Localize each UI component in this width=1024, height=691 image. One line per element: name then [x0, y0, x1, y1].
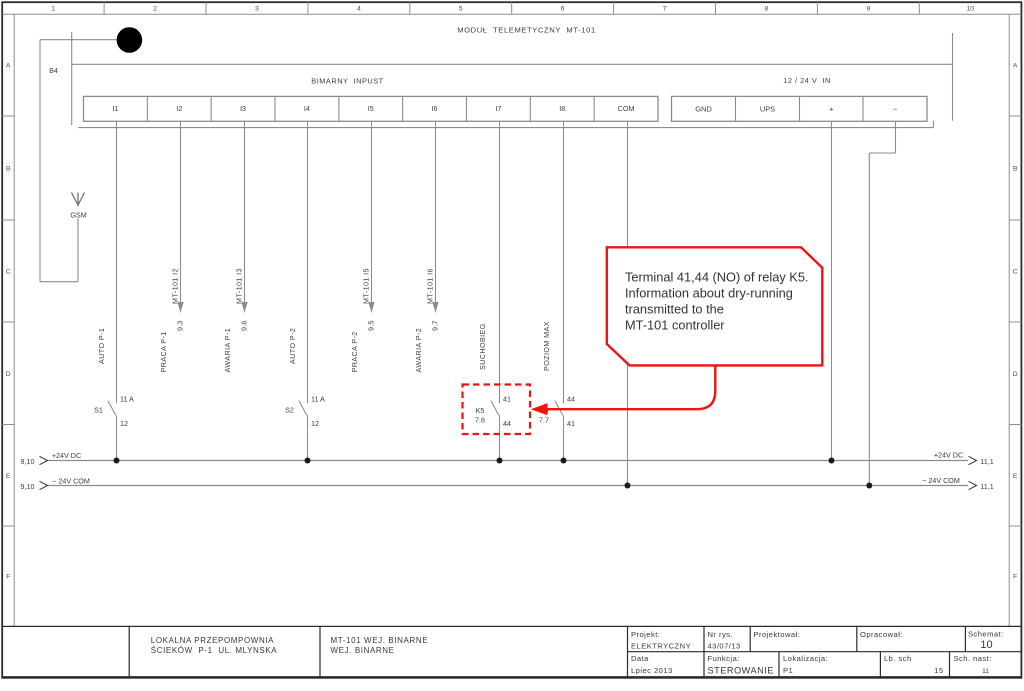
svg-text:B: B — [6, 166, 11, 173]
svg-text:9.5: 9.5 — [367, 320, 376, 331]
svg-text:SUCHOBIEG: SUCHOBIEG — [478, 323, 487, 370]
svg-text:D: D — [6, 371, 11, 378]
svg-text:S1: S1 — [94, 406, 103, 415]
svg-text:9.6: 9.6 — [240, 320, 249, 331]
svg-text:LOKALNA PRZEPOMPOWNIA: LOKALNA PRZEPOMPOWNIA — [151, 636, 274, 645]
svg-text:ELEKTRYCZNY: ELEKTRYCZNY — [631, 642, 691, 651]
svg-text:1: 1 — [51, 6, 55, 13]
svg-text:4: 4 — [357, 6, 361, 13]
svg-text:B: B — [1013, 166, 1018, 173]
svg-text:A: A — [6, 63, 11, 70]
svg-text:UPS: UPS — [760, 105, 775, 114]
svg-text:ŚCIEKÓW P-1 UL. MLYNSKA: ŚCIEKÓW P-1 UL. MLYNSKA — [151, 646, 277, 655]
svg-text:11 A: 11 A — [311, 394, 325, 403]
svg-text:15: 15 — [934, 666, 943, 675]
svg-text:12 / 24 V IN: 12 / 24 V IN — [783, 76, 831, 85]
svg-text:I8: I8 — [559, 104, 565, 113]
svg-text:7.6: 7.6 — [475, 415, 485, 424]
svg-text:Sch. nast:: Sch. nast: — [954, 654, 992, 663]
svg-text:11 A: 11 A — [120, 394, 134, 403]
svg-text:STEROWANIE: STEROWANIE — [708, 666, 774, 676]
svg-text:5: 5 — [459, 6, 463, 13]
svg-text:F: F — [6, 574, 10, 581]
svg-text:E: E — [1013, 473, 1018, 480]
svg-text:MT-101 I5: MT-101 I5 — [362, 268, 371, 304]
svg-text:K5: K5 — [476, 406, 485, 415]
svg-text:PRACA P-1: PRACA P-1 — [159, 331, 168, 372]
svg-text:44: 44 — [567, 394, 575, 403]
svg-text:AUTO P-1: AUTO P-1 — [97, 328, 106, 364]
svg-text:MODUŁ TELEMETYCZNY MT-101: MODUŁ TELEMETYCZNY MT-101 — [457, 26, 596, 35]
svg-text:Lpiec 2013: Lpiec 2013 — [631, 666, 673, 675]
svg-text:AWARIA P-1: AWARIA P-1 — [223, 328, 232, 373]
svg-text:Terminal 41,44 (NO) of relay K: Terminal 41,44 (NO) of relay K5. — [625, 270, 809, 285]
svg-text:Lb. sch: Lb. sch — [884, 654, 912, 663]
svg-text:B4: B4 — [49, 66, 58, 75]
svg-text:12: 12 — [120, 419, 128, 428]
svg-text:9: 9 — [866, 6, 870, 13]
svg-text:44: 44 — [503, 419, 511, 428]
svg-text:COM: COM — [618, 104, 635, 113]
svg-text:GND: GND — [695, 105, 711, 114]
svg-text:11,1: 11,1 — [980, 457, 993, 466]
svg-text:MT-101 I6: MT-101 I6 — [426, 268, 435, 304]
svg-text:MT-101 controller: MT-101 controller — [625, 318, 725, 333]
svg-text:+24V DC: +24V DC — [52, 451, 81, 460]
svg-text:AWARIA P-2: AWARIA P-2 — [414, 328, 423, 373]
svg-text:Opracował:: Opracował: — [860, 630, 903, 639]
svg-text:− 24V COM: − 24V COM — [922, 476, 960, 485]
svg-text:I2: I2 — [176, 104, 182, 113]
svg-text:7: 7 — [663, 6, 667, 13]
svg-text:− 24V COM: − 24V COM — [52, 477, 90, 486]
svg-text:12: 12 — [311, 419, 319, 428]
svg-text:+24V DC: +24V DC — [934, 451, 963, 460]
svg-text:E: E — [6, 473, 11, 480]
svg-text:transmitted to the: transmitted to the — [625, 302, 724, 317]
svg-text:C: C — [1013, 269, 1018, 276]
svg-text:−: − — [893, 105, 897, 114]
svg-text:10: 10 — [966, 6, 974, 13]
svg-text:Nr rys.: Nr rys. — [708, 630, 734, 639]
svg-text:POZIOM MAX: POZIOM MAX — [542, 321, 551, 371]
svg-text:GSM: GSM — [70, 211, 86, 220]
svg-text:Projekt:: Projekt: — [631, 630, 660, 639]
svg-text:MT-101 I2: MT-101 I2 — [171, 268, 180, 304]
svg-text:9,10: 9,10 — [21, 482, 35, 491]
svg-text:9.7: 9.7 — [431, 320, 440, 331]
svg-text:Schemat:: Schemat: — [968, 630, 1004, 639]
svg-text:C: C — [6, 269, 11, 276]
svg-text:PRACA P-2: PRACA P-2 — [350, 331, 359, 372]
svg-text:3: 3 — [255, 6, 259, 13]
svg-text:6: 6 — [561, 6, 565, 13]
svg-text:11,1: 11,1 — [980, 482, 993, 491]
svg-text:MT-101 WEJ. BINARNE: MT-101 WEJ. BINARNE — [331, 636, 429, 645]
svg-text:7.7: 7.7 — [539, 415, 549, 424]
svg-text:10: 10 — [980, 639, 992, 651]
svg-text:MT-101 I3: MT-101 I3 — [235, 268, 244, 304]
svg-text:I1: I1 — [112, 104, 118, 113]
svg-text:D: D — [1013, 371, 1018, 378]
svg-text:S2: S2 — [285, 406, 294, 415]
svg-text:9,10: 9,10 — [21, 457, 35, 466]
svg-text:I6: I6 — [432, 104, 438, 113]
svg-text:2: 2 — [153, 6, 157, 13]
svg-text:AUTO P-2: AUTO P-2 — [288, 328, 297, 364]
svg-text:Information about dry-running: Information about dry-running — [625, 286, 793, 301]
svg-text:I4: I4 — [304, 104, 310, 113]
svg-text:I3: I3 — [240, 104, 246, 113]
svg-text:BIMARNY INPUST: BIMARNY INPUST — [311, 77, 383, 86]
svg-text:I7: I7 — [495, 104, 501, 113]
svg-text:F: F — [1013, 574, 1017, 581]
svg-text:Lokalizacja:: Lokalizacja: — [783, 654, 828, 663]
svg-text:A: A — [1013, 63, 1018, 70]
svg-text:P1: P1 — [783, 666, 793, 675]
svg-text:WEJ. BINARNE: WEJ. BINARNE — [331, 646, 395, 655]
svg-text:Projektował:: Projektował: — [754, 630, 801, 639]
svg-text:Funkcja:: Funkcja: — [708, 654, 740, 663]
svg-text:8: 8 — [765, 6, 769, 13]
svg-text:43/07/13: 43/07/13 — [708, 642, 741, 651]
svg-text:I5: I5 — [368, 104, 374, 113]
svg-text:Data: Data — [631, 654, 649, 663]
svg-text:+: + — [829, 105, 833, 114]
svg-text:41: 41 — [503, 394, 511, 403]
svg-text:41: 41 — [567, 419, 575, 428]
svg-text:9.3: 9.3 — [176, 320, 185, 331]
svg-text:11: 11 — [982, 668, 989, 675]
